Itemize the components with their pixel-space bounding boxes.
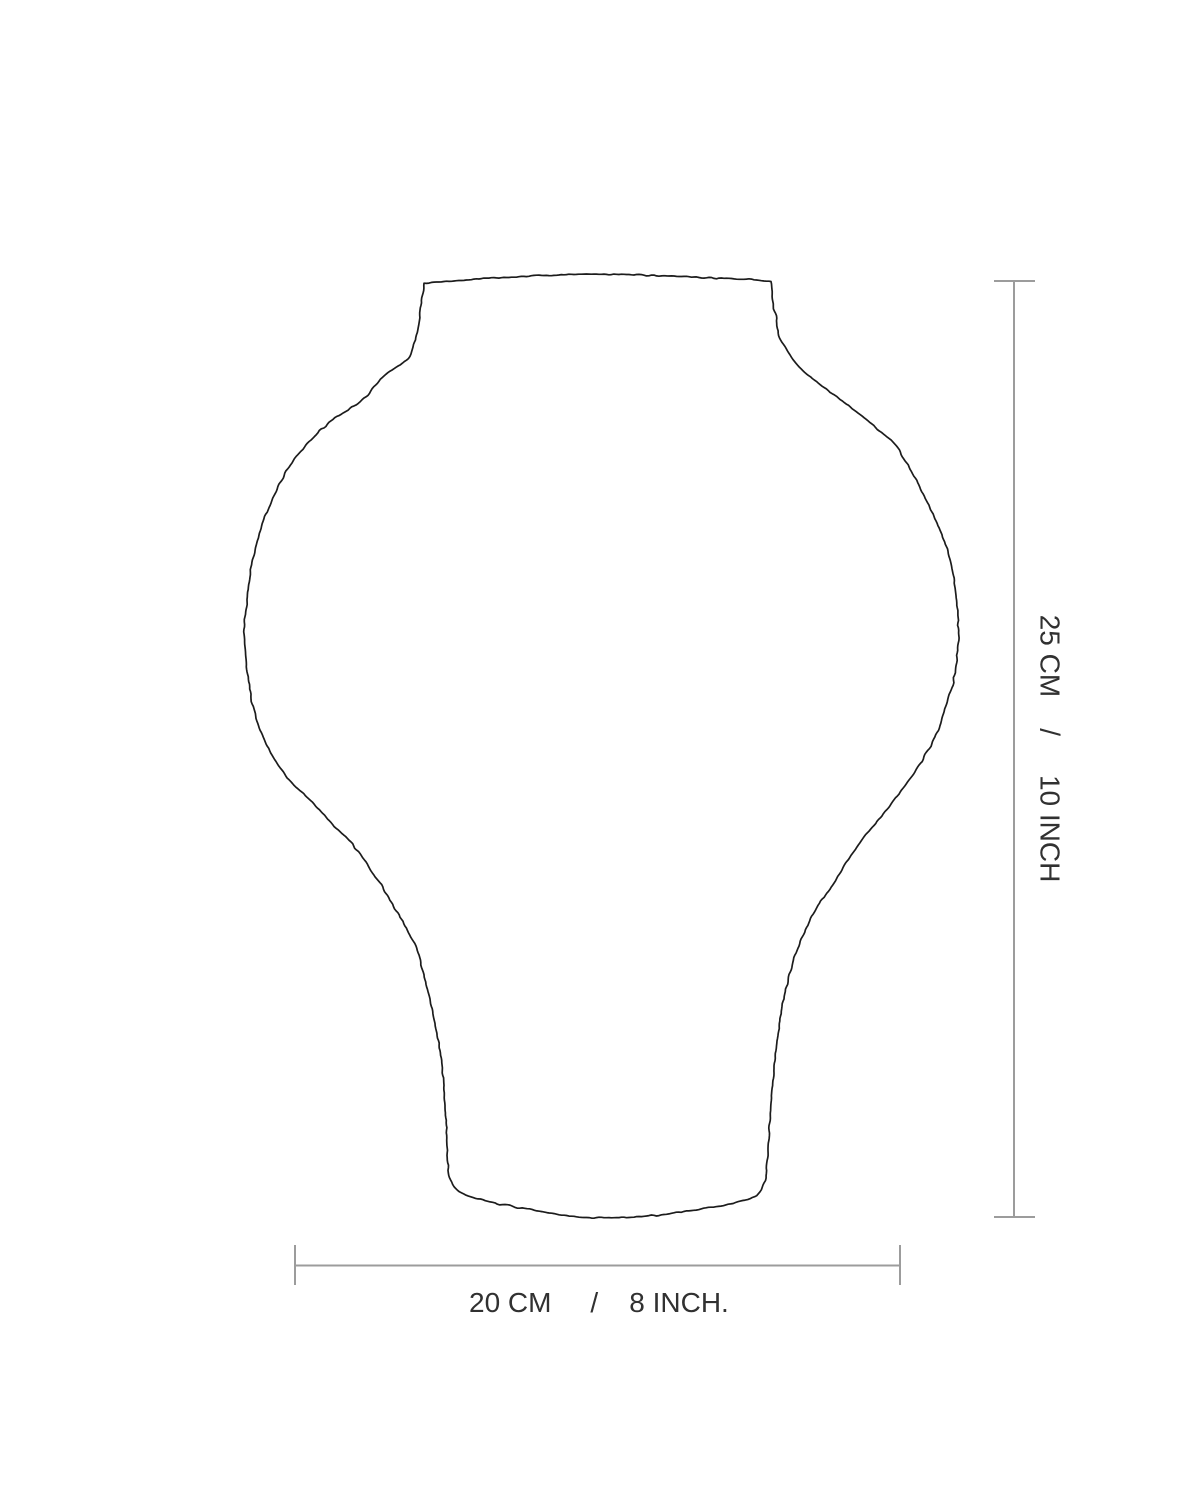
- svg-text:20 CM / 8 INCH.: 20 CM / 8 INCH.: [469, 1287, 729, 1318]
- svg-text:25 CM / 10 INCH: 25 CM / 10 INCH: [1034, 615, 1065, 883]
